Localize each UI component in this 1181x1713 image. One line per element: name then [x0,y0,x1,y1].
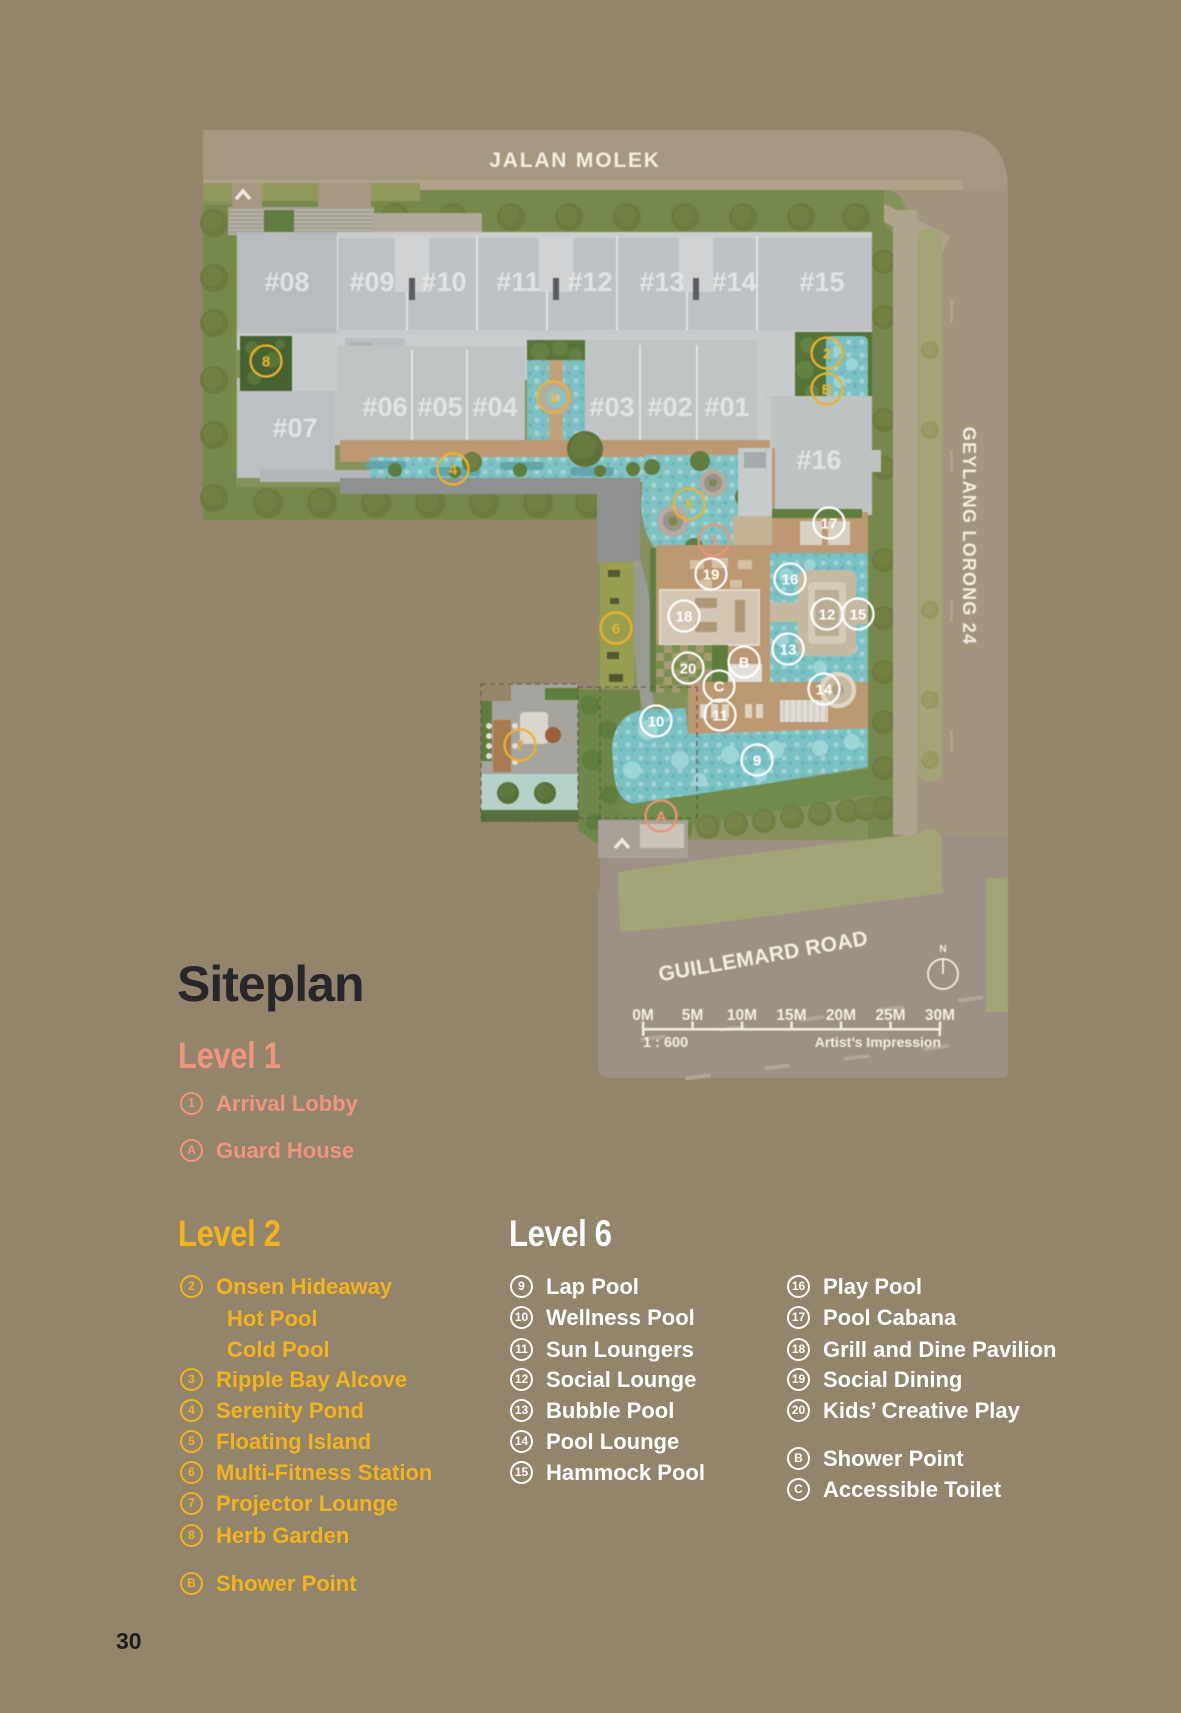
svg-text:15: 15 [850,606,867,623]
svg-text:16: 16 [782,571,799,588]
svg-text:20M: 20M [826,1007,856,1024]
svg-text:#02: #02 [647,392,692,422]
svg-text:GEYLANG LORONG 24: GEYLANG LORONG 24 [959,427,979,645]
svg-text:2: 2 [823,345,831,362]
svg-text:15M: 15M [776,1007,806,1024]
svg-text:#09: #09 [349,267,394,297]
svg-text:25M: 25M [875,1007,905,1024]
svg-text:12: 12 [819,606,836,623]
svg-text:A: A [656,808,667,825]
svg-text:20: 20 [680,660,697,677]
svg-text:#11: #11 [496,267,540,297]
svg-text:B: B [739,654,750,671]
svg-text:#16: #16 [796,445,841,475]
svg-text:#03: #03 [589,392,634,422]
svg-text:18: 18 [676,608,693,625]
svg-text:#01: #01 [704,392,749,422]
svg-text:#14: #14 [711,267,756,297]
svg-text:19: 19 [703,566,720,583]
svg-text:#10: #10 [421,267,466,297]
svg-text:5: 5 [685,496,693,513]
svg-text:0M: 0M [632,1007,654,1024]
svg-text:11: 11 [712,707,728,724]
svg-text:10M: 10M [727,1007,757,1024]
svg-text:1: 1 [710,532,718,549]
svg-text:#08: #08 [264,267,309,297]
svg-text:3: 3 [549,389,557,406]
svg-text:#06: #06 [362,392,407,422]
svg-text:13: 13 [780,641,797,658]
svg-text:4: 4 [449,461,458,478]
svg-text:30M: 30M [925,1007,955,1024]
svg-text:Artist’s Impression: Artist’s Impression [815,1034,941,1050]
svg-text:C: C [714,678,725,695]
svg-text:JALAN MOLEK: JALAN MOLEK [489,149,660,172]
svg-text:6: 6 [612,620,620,637]
svg-text:14: 14 [816,681,833,698]
svg-text:#05: #05 [417,392,462,422]
svg-text:#07: #07 [272,413,317,443]
svg-text:9: 9 [753,752,761,769]
svg-text:7: 7 [516,737,524,754]
svg-text:N: N [939,944,946,955]
svg-text:#13: #13 [639,267,684,297]
svg-text:17: 17 [821,515,838,532]
svg-text:1 : 600: 1 : 600 [643,1035,688,1051]
svg-text:B: B [822,381,833,398]
svg-text:8: 8 [262,353,270,370]
svg-text:#12: #12 [567,267,612,297]
svg-text:#15: #15 [799,267,844,297]
svg-text:5M: 5M [682,1007,704,1024]
svg-text:10: 10 [648,713,665,730]
svg-text:#04: #04 [472,392,517,422]
